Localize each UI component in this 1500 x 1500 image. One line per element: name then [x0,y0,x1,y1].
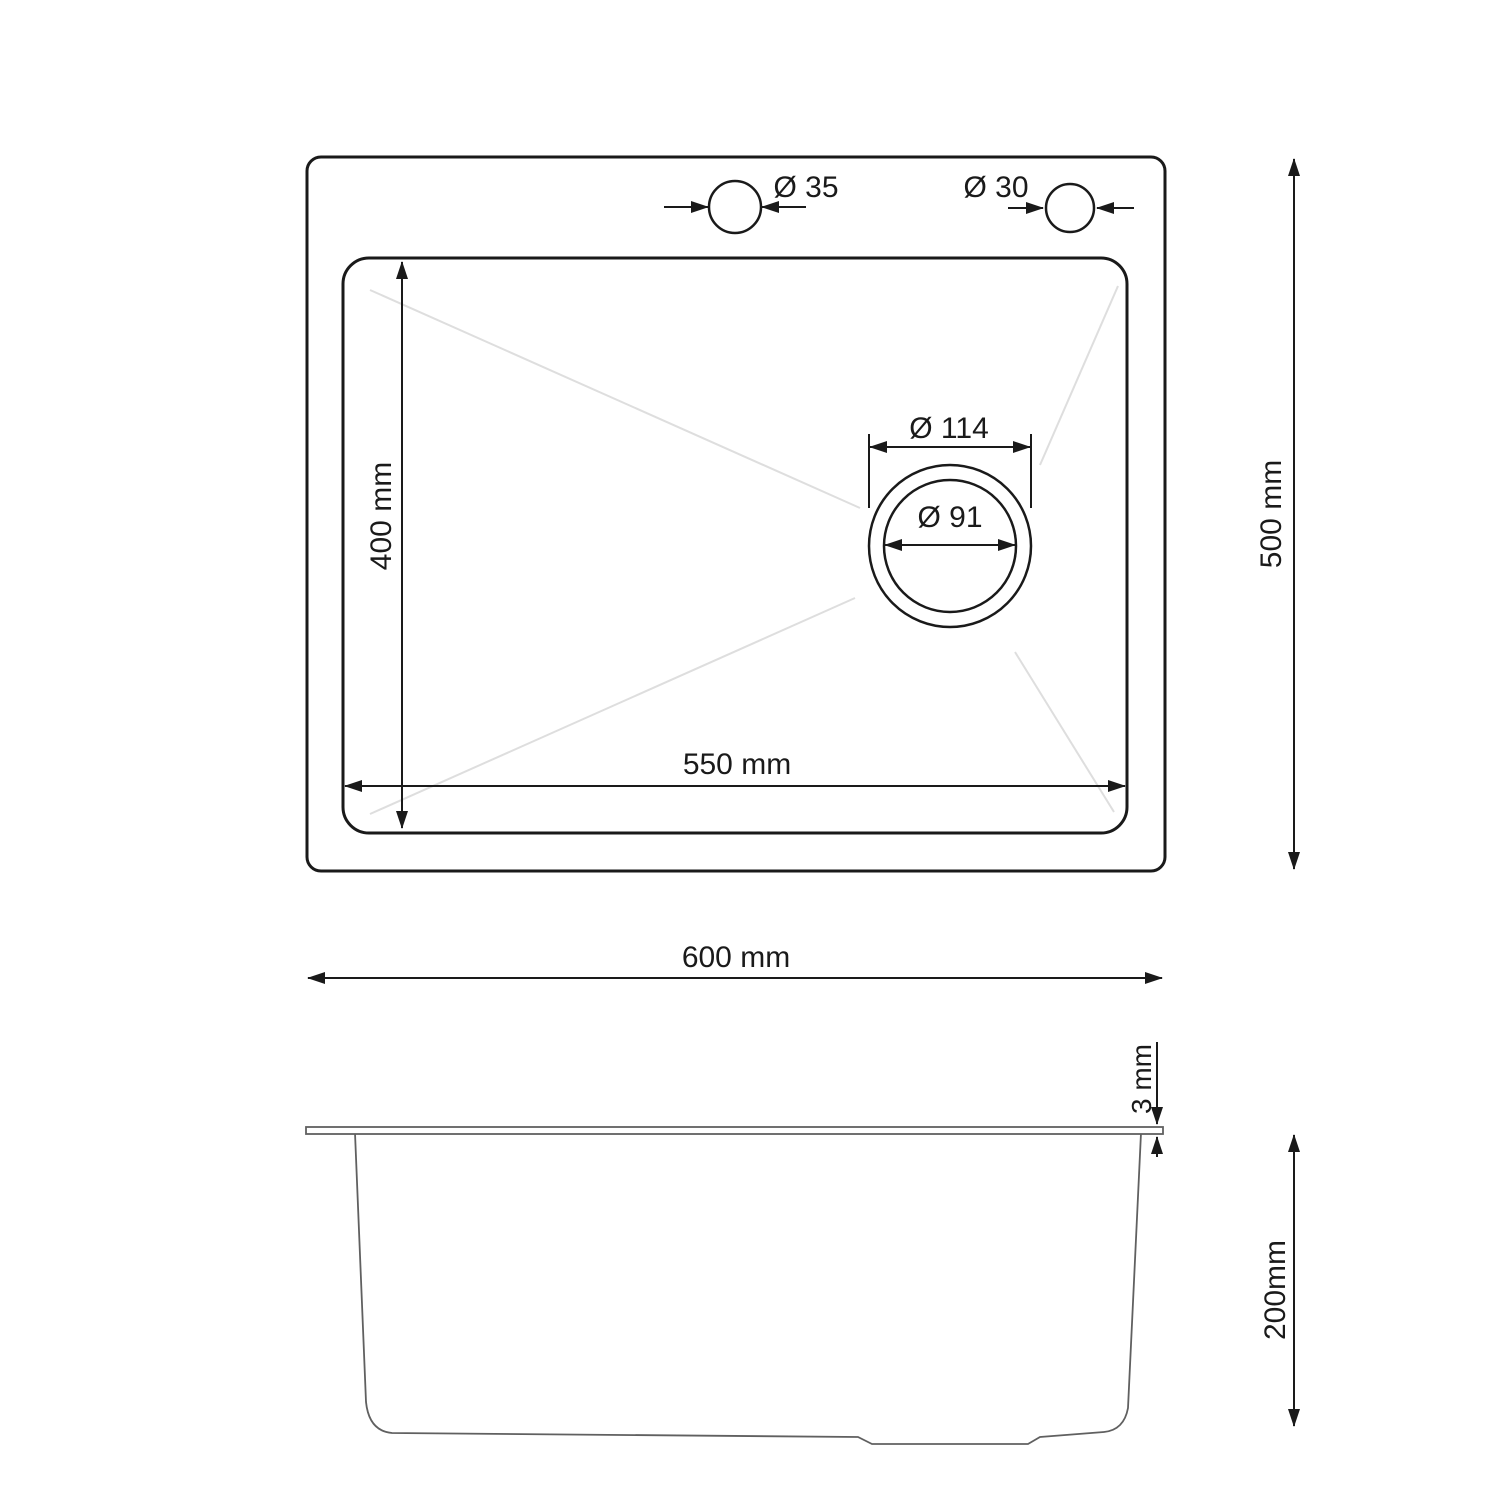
bowl-depth-label: 400 mm [365,462,398,570]
faucet-hole-left-circle [709,181,761,233]
side-view: 3 mm 200mm [306,1042,1300,1444]
body-height-dimension: 200mm [1259,1134,1300,1427]
overall-width-label: 600 mm [682,941,790,974]
arrowhead-down [1288,852,1300,870]
faucet-hole-right-diameter-label: Ø 30 [963,171,1028,204]
arrowhead-up [1288,1134,1300,1152]
faucet-hole-left-diameter-label: Ø 35 [773,171,838,204]
sink-body-profile [355,1133,1141,1444]
drain-inner-diameter-label: Ø 91 [917,501,982,534]
faucet-hole-right-circle [1046,184,1094,232]
sink-technical-drawing: Ø 114 Ø 91 Ø 35 Ø 30 [0,0,1500,1500]
arrowhead-right [1145,972,1163,984]
sink-rim-profile [306,1127,1163,1134]
arrowhead-up [1151,1136,1163,1154]
arrowhead-up [1288,158,1300,176]
arrowhead-left [307,972,325,984]
drain-outer-diameter-label: Ø 114 [909,412,989,445]
body-height-label: 200mm [1259,1240,1292,1340]
arrowhead-down [1288,1409,1300,1427]
overall-width-dimension: 600 mm [307,941,1163,984]
overall-depth-dimension: 500 mm [1255,158,1300,870]
overall-depth-label: 500 mm [1255,460,1288,568]
rim-thickness-label: 3 mm [1126,1044,1157,1114]
bowl-width-label: 550 mm [683,748,791,781]
top-view: Ø 114 Ø 91 Ø 35 Ø 30 [307,157,1300,984]
